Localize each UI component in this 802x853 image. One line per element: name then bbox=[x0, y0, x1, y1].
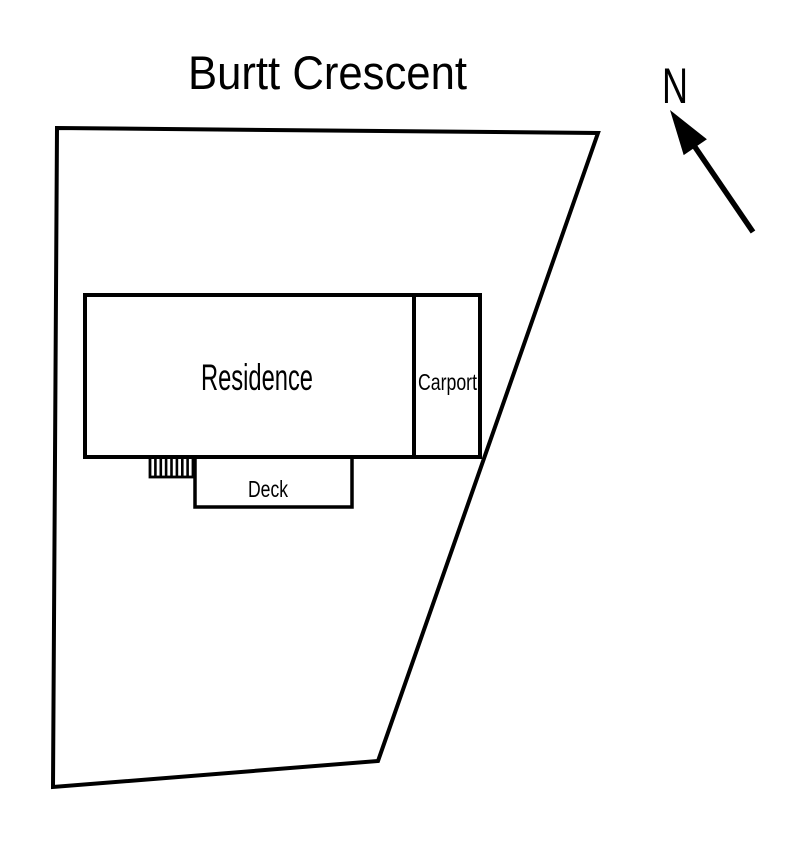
north-arrow-head-icon bbox=[670, 110, 707, 155]
steps-hatch bbox=[150, 457, 193, 477]
deck-label: Deck bbox=[248, 476, 288, 502]
north-label: N bbox=[662, 58, 688, 114]
carport-label: Carport bbox=[418, 369, 477, 395]
north-arrow-shaft bbox=[695, 147, 753, 232]
north-arrow bbox=[670, 110, 753, 232]
site-plan-page: Burtt Crescent N Residence Carport Deck bbox=[0, 0, 802, 853]
page-title: Burtt Crescent bbox=[188, 46, 467, 99]
residence-label: Residence bbox=[201, 357, 313, 398]
site-plan-drawing: Burtt Crescent N Residence Carport Deck bbox=[0, 0, 802, 853]
